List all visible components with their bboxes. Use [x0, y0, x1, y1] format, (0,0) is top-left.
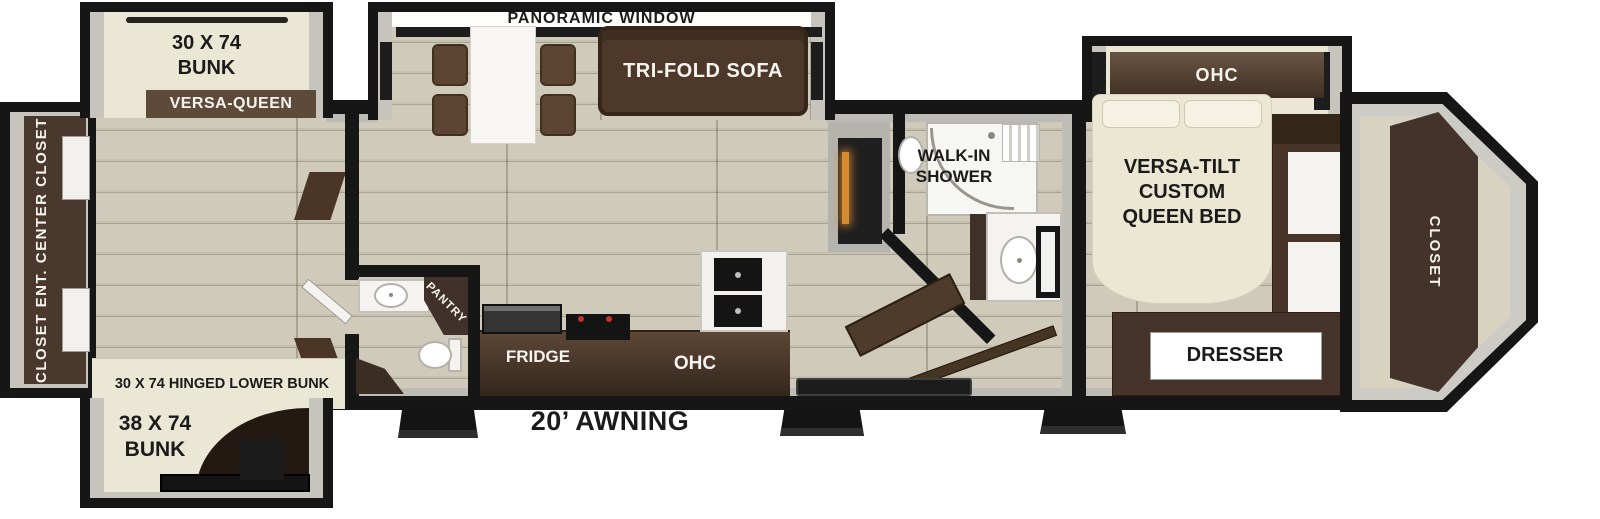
wardrobe-top-shelf	[1272, 114, 1348, 144]
walk-in-shower-label: WALK-IN SHOWER	[898, 142, 1010, 190]
living-slideout-window-left	[380, 42, 392, 100]
bath-right-wall	[1072, 108, 1086, 396]
entry-steps-middle	[780, 410, 864, 436]
halfbath-sink-drain	[389, 293, 393, 297]
living-slideout-window-right	[811, 42, 823, 100]
stove-burner-2	[606, 316, 612, 322]
panoramic-window-label: PANORAMIC WINDOW	[392, 10, 811, 27]
stove	[566, 314, 630, 340]
dresser-label: DRESSER	[1150, 332, 1320, 378]
shower-head	[988, 132, 995, 139]
bunk2-bed-pedestal	[240, 440, 284, 480]
bunk-bottom-label: 38 X 74 BUNK	[100, 408, 210, 466]
bath-right-wall-inner	[1062, 116, 1072, 396]
tri-fold-sofa-label: TRI-FOLD SOFA	[598, 26, 808, 116]
halfbath-toilet	[418, 341, 452, 369]
versa-queen-label: VERSA-QUEEN	[146, 90, 316, 118]
halfbath-right-wall	[468, 265, 480, 400]
entry-steps-left	[398, 410, 478, 438]
rear-wall-label: CLOSET ENT. CENTER CLOSET	[32, 100, 52, 400]
awning-label: 20’ AWNING	[505, 404, 715, 440]
front-closet-label: CLOSET	[1424, 102, 1444, 402]
dinette-table	[470, 26, 536, 144]
dinette-chair-1	[432, 44, 468, 86]
bath-linen-door	[1041, 232, 1055, 292]
rear-ent-door-top	[62, 136, 90, 200]
halfbath-top-wall	[345, 265, 480, 277]
fireplace-glow	[842, 152, 849, 224]
rear-ent-door-bottom	[62, 288, 90, 352]
kitchen-ohc-label: OHC	[640, 350, 750, 378]
island-cabinet-upper-handle	[735, 272, 741, 278]
bunk2-bed-base	[160, 474, 310, 492]
entry-door-mat	[796, 378, 972, 396]
dinette-chair-3	[540, 44, 576, 86]
island-cabinet-lower-handle	[735, 308, 741, 314]
fridge	[482, 304, 562, 334]
divider-wall-upper	[345, 108, 359, 280]
bottom-wall	[333, 396, 1352, 410]
stove-burner-1	[578, 316, 584, 322]
wardrobe-panel-upper	[1288, 152, 1340, 234]
bedroom-ohc-label: OHC	[1110, 52, 1324, 98]
top-wall-mid-seg	[826, 100, 1088, 114]
dinette-chair-4	[540, 94, 576, 136]
fridge-label: FRIDGE	[478, 344, 598, 370]
rv-floorplan: CLOSET ENT. CENTER CLOSET 30 X 74 BUNK V…	[0, 0, 1600, 519]
bunk-top-label: 30 X 74 BUNK	[104, 28, 309, 84]
bath-sink-drain	[1017, 258, 1022, 263]
entry-steps-right	[1040, 410, 1126, 434]
bed-pillow-left	[1102, 100, 1180, 128]
bed-pillow-right	[1184, 100, 1262, 128]
bunk-window-strip	[126, 17, 288, 23]
dinette-chair-2	[432, 94, 468, 136]
bath-vanity-side	[970, 214, 986, 300]
queen-bed-label: VERSA-TILT CUSTOM QUEEN BED	[1092, 144, 1272, 240]
hinged-bunk-label: 30 X 74 HINGED LOWER BUNK	[96, 372, 348, 396]
top-wall-mid-inner	[826, 114, 1088, 122]
